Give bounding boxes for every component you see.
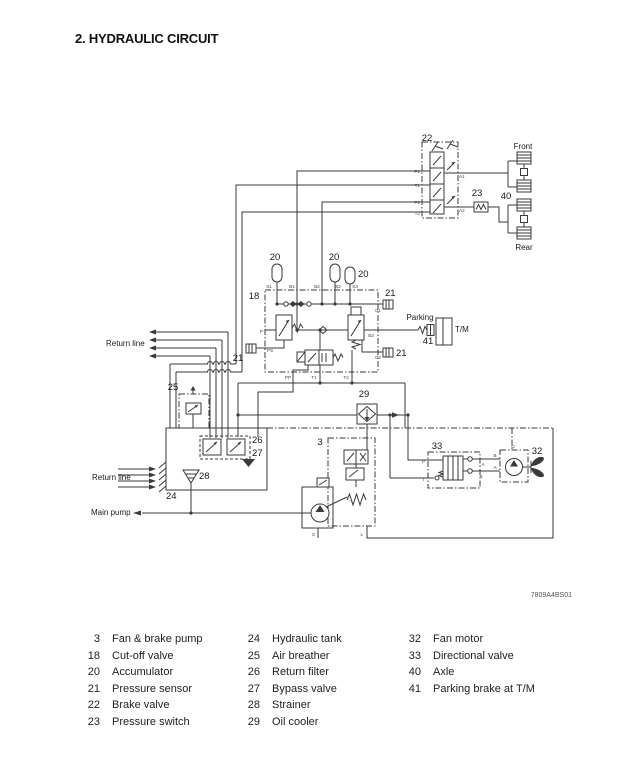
legend-item-name: Fan & brake pump xyxy=(112,633,203,645)
legend-item-number: 3 xyxy=(82,633,100,645)
port-a-motor: A xyxy=(493,465,497,470)
legend-item: 18Cut-off valve xyxy=(82,648,203,665)
legend-item-number: 23 xyxy=(82,716,100,728)
label-22: 22 xyxy=(422,133,433,144)
label-41: 41 xyxy=(423,336,434,347)
legend-column-2: 24Hydraulic tank 25Air breather 26Return… xyxy=(242,631,342,730)
legend-item-number: 32 xyxy=(403,633,421,645)
label-20a: 20 xyxy=(270,252,281,263)
legend-item: 21Pressure sensor xyxy=(82,681,203,698)
port-t2: T2 xyxy=(415,211,421,216)
legend-item-number: 40 xyxy=(403,666,421,678)
legend-item-name: Pressure switch xyxy=(112,716,190,728)
label-23: 23 xyxy=(472,188,483,199)
port-t1: T1 xyxy=(415,183,421,188)
legend-item-number: 28 xyxy=(242,699,260,711)
port-p-dir: P xyxy=(422,459,425,464)
label-21-g1: 21 xyxy=(385,288,396,299)
legend-item-number: 27 xyxy=(242,683,260,695)
legend-item-name: Pressure sensor xyxy=(112,683,192,695)
label-26: 26 xyxy=(252,435,263,446)
label-3: 3 xyxy=(317,437,322,448)
pipes xyxy=(133,171,553,538)
legend-item-name: Air breather xyxy=(272,650,329,662)
label-24: 24 xyxy=(166,491,177,502)
legend-item-name: Bypass valve xyxy=(272,683,337,695)
label-20b: 20 xyxy=(329,252,340,263)
strainer xyxy=(183,470,199,483)
label-33: 33 xyxy=(432,441,443,452)
port-g2: G2 xyxy=(375,355,382,360)
port-s2: S2 xyxy=(335,284,341,289)
legend-item-name: Directional valve xyxy=(433,650,514,662)
hydraulic-circuit-diagram: 22 23 40 Front Rear 20 20 20 18 21 21 21… xyxy=(0,0,635,625)
return-filter xyxy=(200,436,255,467)
label-return-line-top: Return line xyxy=(106,339,145,348)
legend-item-name: Fan motor xyxy=(433,633,483,645)
port-t-dir: T xyxy=(422,477,425,482)
legend-item-name: Strainer xyxy=(272,699,311,711)
label-main-pump: Main pump xyxy=(91,508,131,517)
port-a2: A2 xyxy=(459,208,465,213)
legend-item-number: 26 xyxy=(242,666,260,678)
legend-item: 24Hydraulic tank xyxy=(242,631,342,648)
pressure-switch xyxy=(474,202,488,212)
port-d: D xyxy=(511,444,515,449)
legend-item-name: Brake valve xyxy=(112,699,169,711)
legend-column-3: 32Fan motor 33Directional valve 40Axle 4… xyxy=(403,631,535,697)
label-front: Front xyxy=(514,142,533,151)
port-p: P xyxy=(260,329,263,334)
legend-item-number: 25 xyxy=(242,650,260,662)
port-ps: PS xyxy=(267,348,273,353)
legend-item-name: Hydraulic tank xyxy=(272,633,342,645)
label-parking: Parking xyxy=(406,313,433,322)
legend-item-number: 29 xyxy=(242,716,260,728)
legend-item-name: Accumulator xyxy=(112,666,173,678)
label-27: 27 xyxy=(252,448,263,459)
brake-valve xyxy=(422,140,458,218)
legend-item: 26Return filter xyxy=(242,664,342,681)
port-a1: A1 xyxy=(459,174,465,179)
legend-item: 25Air breather xyxy=(242,648,342,665)
port-p2: P2 xyxy=(414,200,420,205)
port-s1: S1 xyxy=(266,284,272,289)
label-29: 29 xyxy=(359,389,370,400)
label-21-ps: 21 xyxy=(233,353,244,364)
port-t1-bottom: T1 xyxy=(311,375,317,380)
axle-rear xyxy=(508,199,531,239)
legend-item: 33Directional valve xyxy=(403,648,535,665)
legend-item: 29Oil cooler xyxy=(242,714,342,731)
legend-column-1: 3Fan & brake pump 18Cut-off valve 20Accu… xyxy=(82,631,203,730)
port-l-pump: L xyxy=(360,532,363,537)
label-return-line-bottom: Return line xyxy=(92,473,131,482)
label-20c: 20 xyxy=(358,269,369,280)
label-18: 18 xyxy=(249,291,260,302)
fan-brake-pump xyxy=(302,438,375,528)
port-a-dir: A xyxy=(481,462,485,467)
legend-item: 23Pressure switch xyxy=(82,714,203,731)
oil-cooler xyxy=(357,404,377,424)
legend-item-number: 41 xyxy=(403,683,421,695)
port-s-pump: S xyxy=(312,532,315,537)
legend-item: 28Strainer xyxy=(242,697,342,714)
legend-item-name: Axle xyxy=(433,666,454,678)
legend-item: 32Fan motor xyxy=(403,631,535,648)
port-g1: G1 xyxy=(375,308,382,313)
label-tm: T/M xyxy=(455,325,469,334)
legend-item-number: 18 xyxy=(82,650,100,662)
legend-item-number: 33 xyxy=(403,650,421,662)
label-32: 32 xyxy=(532,446,543,457)
legend-item-name: Cut-off valve xyxy=(112,650,174,662)
legend-item-name: Oil cooler xyxy=(272,716,318,728)
label-25: 25 xyxy=(168,382,179,393)
axle-front xyxy=(508,152,531,192)
directional-valve xyxy=(428,452,500,488)
legend-item: 20Accumulator xyxy=(82,664,203,681)
port-b2: B2 xyxy=(314,284,320,289)
port-b-dir: B xyxy=(479,474,482,479)
air-breather xyxy=(179,386,209,428)
figure-code: 7809A4BS01 xyxy=(430,592,572,599)
legend-item: 3Fan & brake pump xyxy=(82,631,203,648)
label-21-g2: 21 xyxy=(396,348,407,359)
legend-item-number: 22 xyxy=(82,699,100,711)
label-28: 28 xyxy=(199,471,210,482)
port-s3: S3 xyxy=(352,284,358,289)
port-b1: B1 xyxy=(289,284,295,289)
legend-item: 41Parking brake at T/M xyxy=(403,681,535,698)
label-rear: Rear xyxy=(515,243,533,252)
port-p1: P1 xyxy=(414,169,420,174)
legend-item-name: Return filter xyxy=(272,666,329,678)
legend-item-name: Parking brake at T/M xyxy=(433,683,535,695)
legend-item: 40Axle xyxy=(403,664,535,681)
legend-item-number: 20 xyxy=(82,666,100,678)
legend-item: 22Brake valve xyxy=(82,697,203,714)
port-b3: B3 xyxy=(368,333,374,338)
port-pp: PP xyxy=(285,375,291,380)
return-lines-top xyxy=(149,330,242,439)
legend-item: 27Bypass valve xyxy=(242,681,342,698)
label-40: 40 xyxy=(501,191,512,202)
legend-item-number: 21 xyxy=(82,683,100,695)
legend-item-number: 24 xyxy=(242,633,260,645)
port-t2-bottom: T2 xyxy=(343,375,349,380)
port-b-motor: B xyxy=(493,453,496,458)
